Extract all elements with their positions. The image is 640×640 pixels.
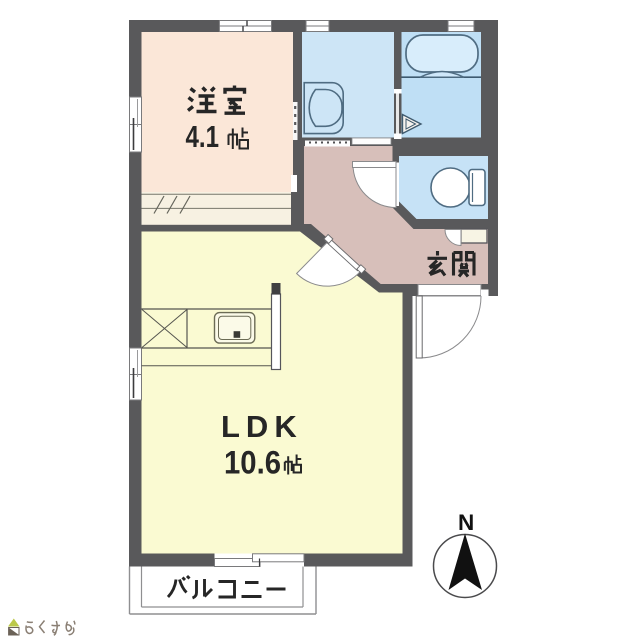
svg-text:4.1: 4.1: [186, 119, 220, 154]
svg-text:LDK: LDK: [221, 409, 303, 444]
svg-text:10.6: 10.6: [224, 445, 281, 481]
svg-text:N: N: [458, 510, 474, 535]
